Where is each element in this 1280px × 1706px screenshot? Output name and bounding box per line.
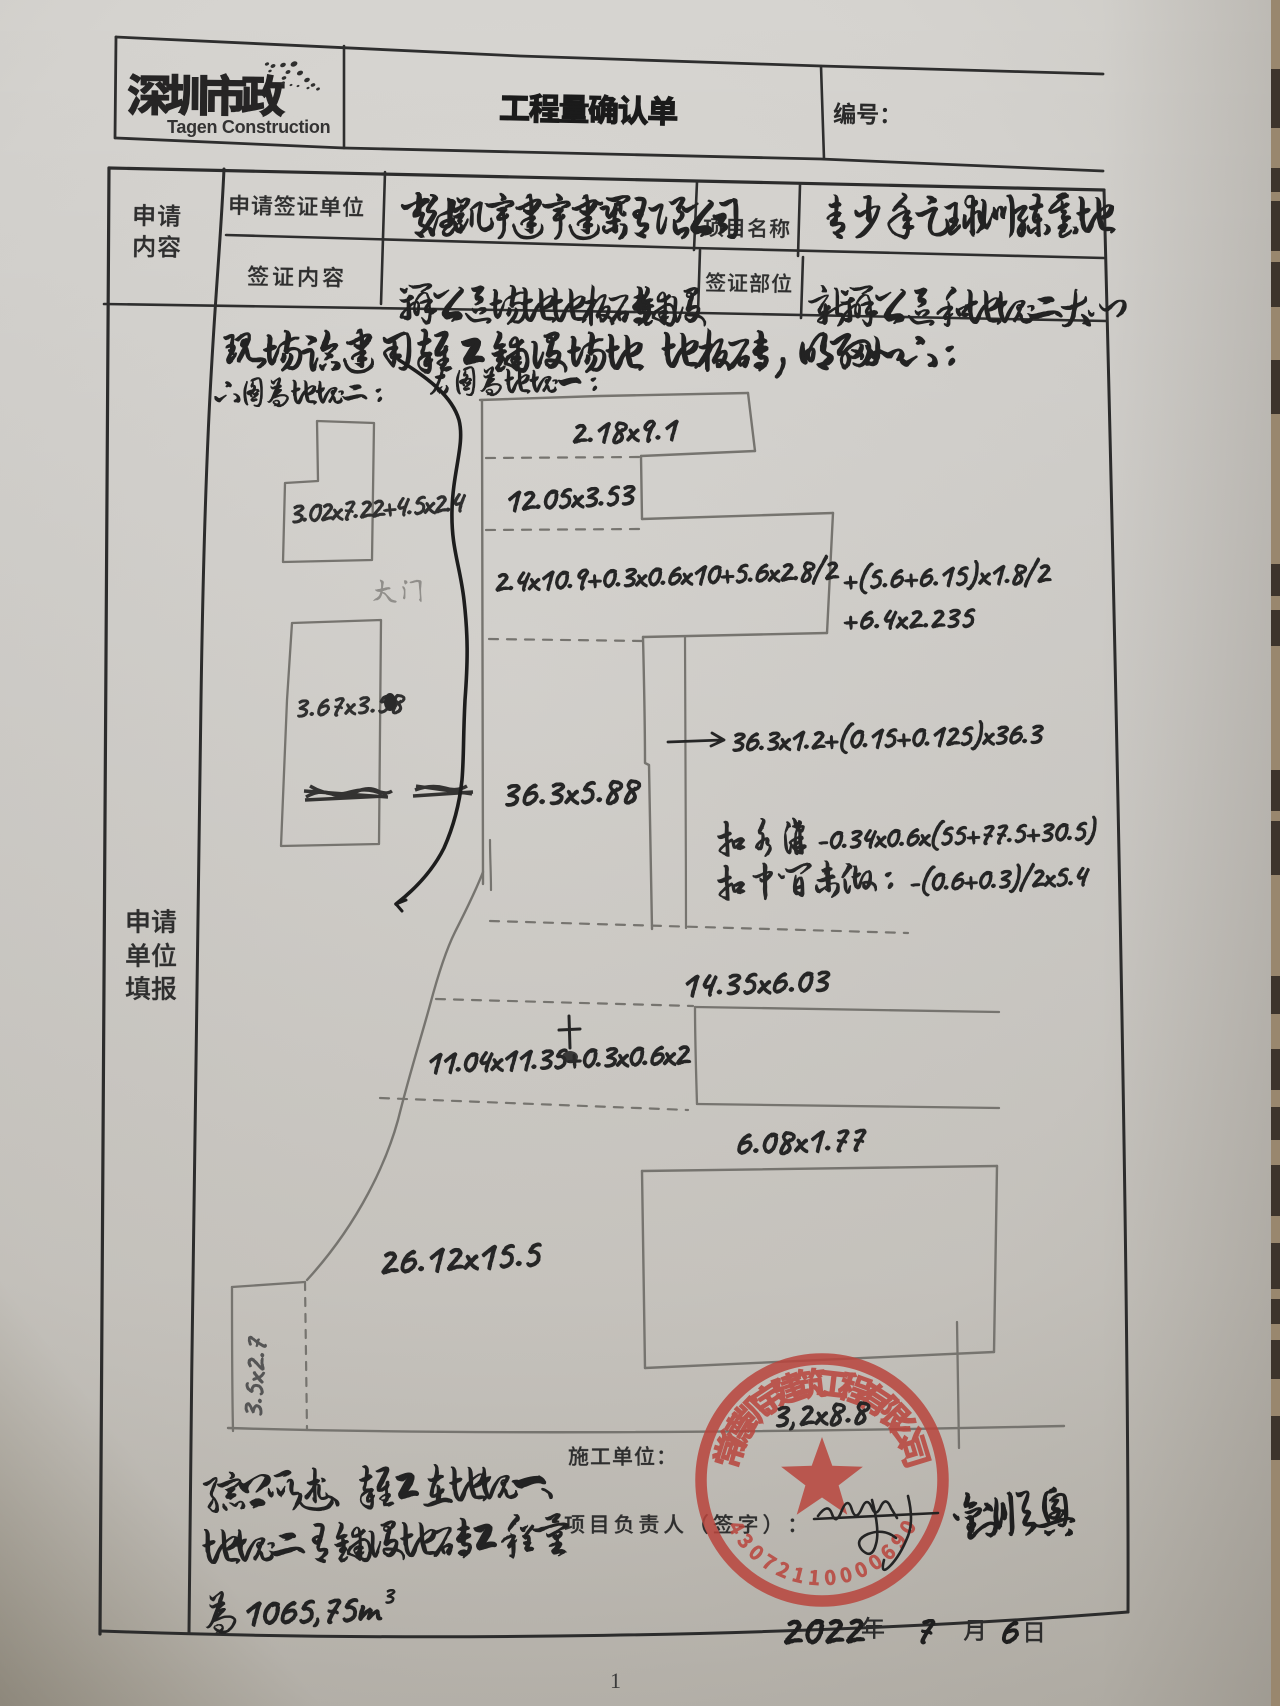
svg-text:Tagen Construction: Tagen Construction	[167, 117, 330, 137]
svg-text:1: 1	[610, 1668, 621, 1693]
